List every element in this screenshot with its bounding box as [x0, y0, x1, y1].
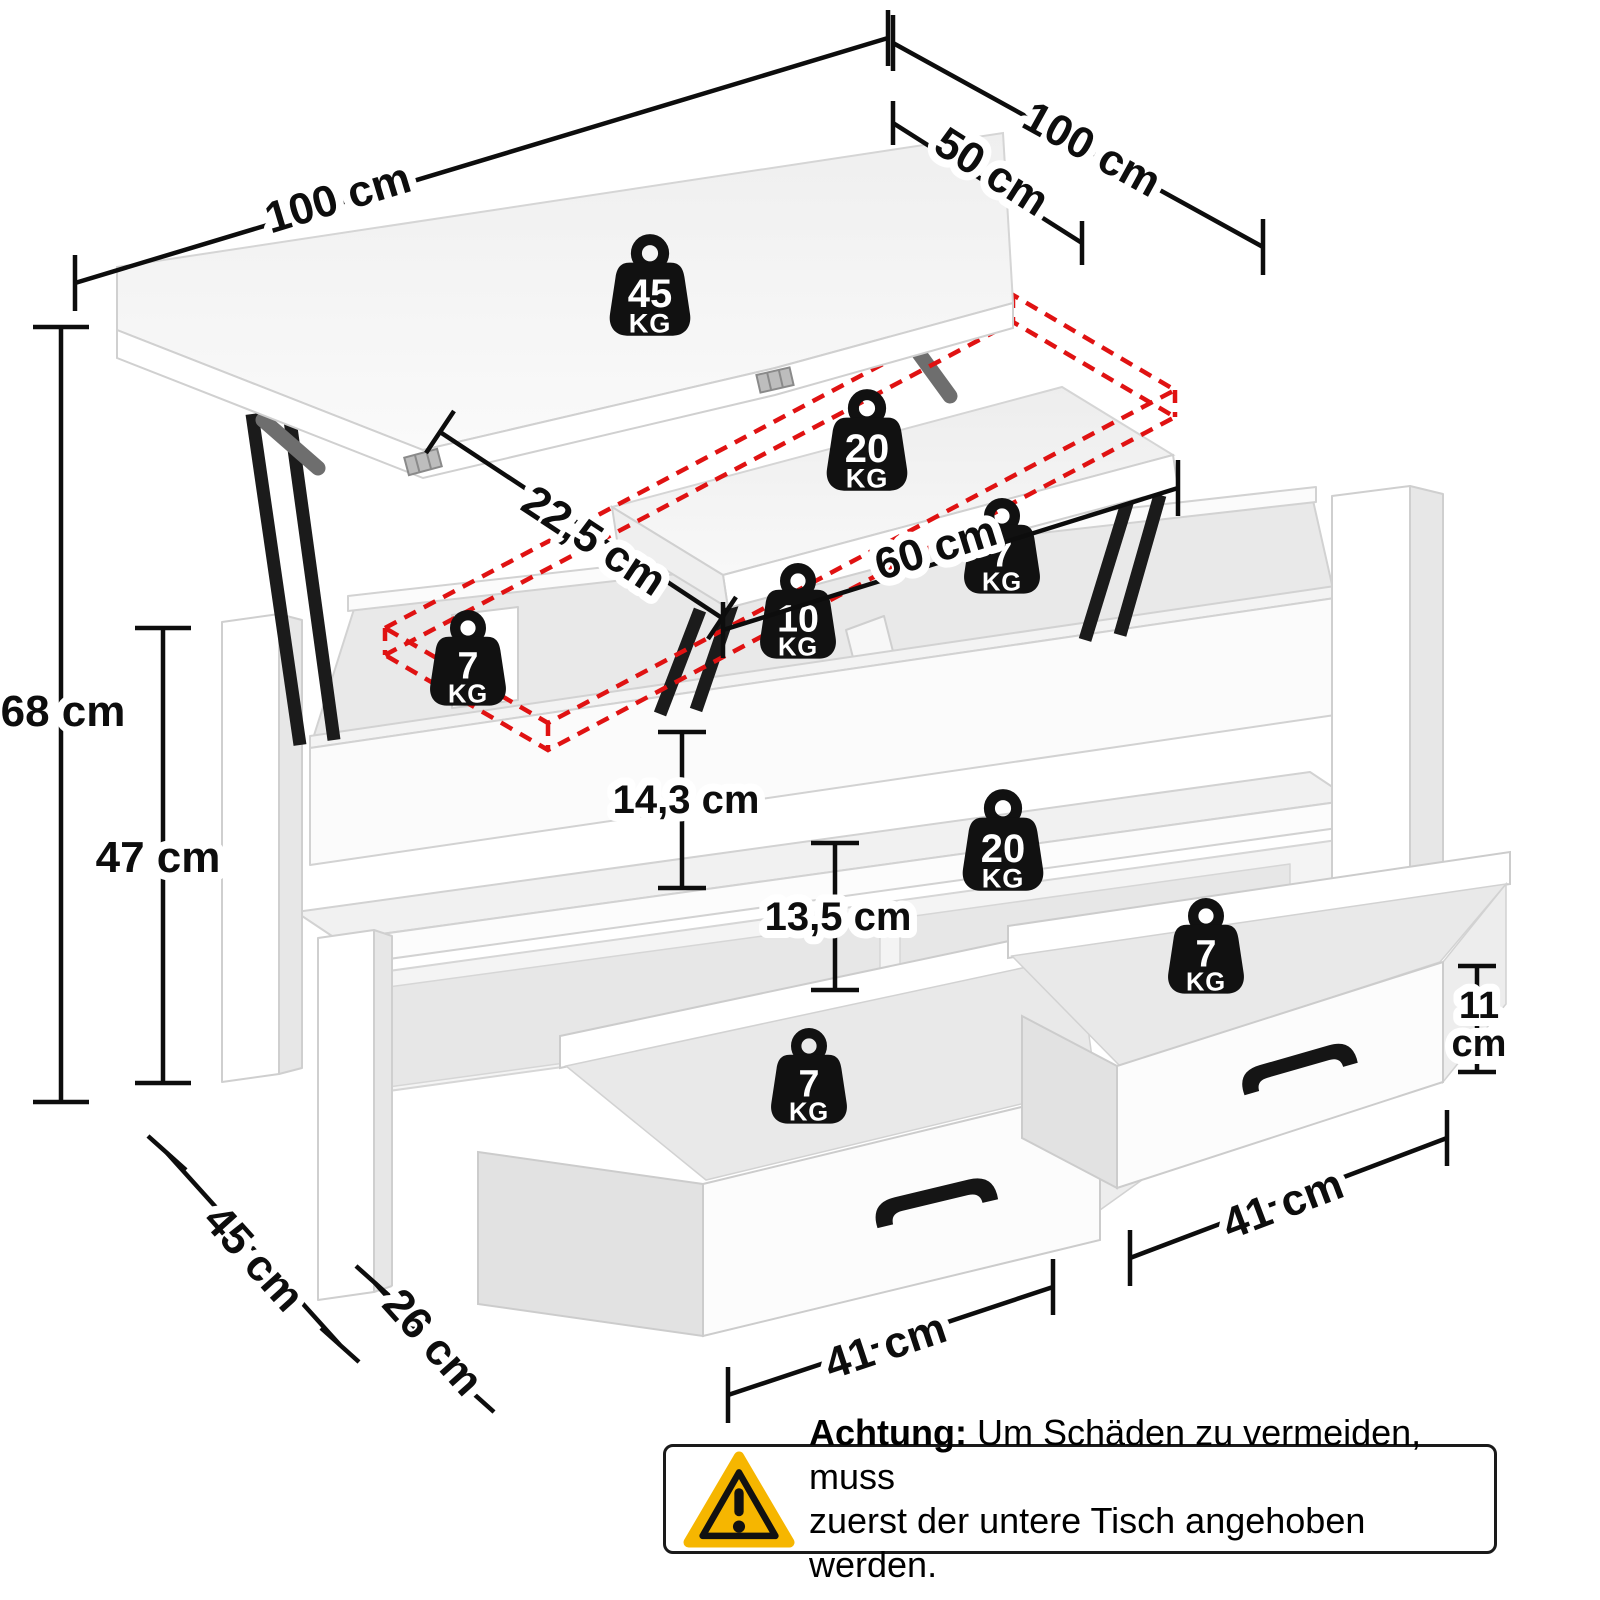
- dim-label-shelf-clearance: 13,5 cm: [765, 895, 912, 939]
- warning-label: Achtung:: [809, 1412, 977, 1453]
- weight-unit: KG: [1186, 968, 1226, 996]
- dim-label-compartment-depth: 14,3 cm: [613, 778, 760, 822]
- warning-text: Achtung: Um Schäden zu vermeiden, muss z…: [809, 1411, 1484, 1587]
- weight-unit: KG: [448, 680, 488, 708]
- warning-notice: Achtung: Um Schäden zu vermeiden, muss z…: [663, 1444, 1497, 1554]
- dim-label-drawer-width-right: 41 cm: [1216, 1159, 1350, 1249]
- dim-label-drawer-height-unit: cm: [1452, 1023, 1507, 1065]
- drawer-left-side-panel: [478, 1152, 703, 1336]
- weight-unit: KG: [778, 633, 818, 661]
- diagram-canvas: 45 KG 20 KG 7 KG 10 KG 7 KG 20 KG: [0, 0, 1600, 1600]
- dim-label-leg-clearance: 26 cm: [373, 1280, 493, 1406]
- weight-badge-lift-top: 20 KG: [827, 395, 908, 494]
- weight-unit: KG: [846, 462, 888, 493]
- weight-unit: KG: [789, 1098, 829, 1126]
- gas-arm-right: [918, 352, 950, 396]
- dim-label-drawer-height-value: 11: [1459, 985, 1499, 1027]
- weight-unit: KG: [982, 568, 1022, 596]
- dim-label-drawer-width-left: 41 cm: [818, 1303, 952, 1389]
- weight-unit: KG: [982, 862, 1024, 893]
- product-dimension-diagram: 45 KG 20 KG 7 KG 10 KG 7 KG 20 KG: [0, 0, 1600, 1600]
- leg-front-left: [318, 930, 392, 1300]
- weight-unit: KG: [629, 307, 671, 338]
- warning-line2: zuerst der untere Tisch angehoben werden…: [809, 1500, 1365, 1585]
- dim-label-base-depth: 45 cm: [194, 1196, 314, 1322]
- dim-label-height-table: 47 cm: [96, 833, 221, 882]
- weight-badge-shelf: 20 KG: [963, 795, 1044, 894]
- dim-label-height-total: 68 cm: [1, 687, 126, 736]
- warning-triangle-icon: [683, 1451, 795, 1548]
